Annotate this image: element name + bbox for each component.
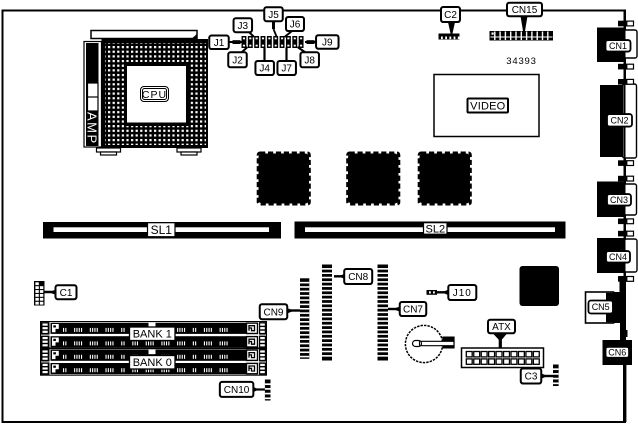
svg-text:BANK 1: BANK 1 (133, 329, 172, 341)
svg-text:J8: J8 (304, 55, 315, 66)
svg-text:J4: J4 (259, 64, 270, 75)
svg-text:J9: J9 (322, 38, 333, 49)
svg-text:C2: C2 (444, 10, 457, 21)
svg-text:J7: J7 (281, 64, 292, 75)
svg-text:AMP: AMP (85, 112, 100, 145)
svg-text:C1: C1 (60, 288, 73, 299)
svg-text:BANK 0: BANK 0 (133, 357, 172, 369)
svg-text:CN10: CN10 (224, 385, 250, 396)
svg-text:CN2: CN2 (610, 116, 628, 126)
svg-text:J10: J10 (453, 288, 472, 299)
svg-text:SL2: SL2 (426, 224, 446, 236)
svg-text:34393: 34393 (506, 56, 536, 67)
svg-text:CN4: CN4 (609, 252, 627, 262)
svg-text:J3: J3 (238, 21, 249, 32)
svg-text:CN6: CN6 (608, 348, 626, 358)
svg-text:CN9: CN9 (263, 307, 283, 318)
svg-text:SL1: SL1 (151, 223, 173, 237)
svg-text:CN1: CN1 (609, 41, 627, 51)
svg-text:C3: C3 (525, 372, 538, 383)
svg-text:CN8: CN8 (348, 272, 368, 283)
svg-text:CN3: CN3 (610, 195, 628, 205)
svg-text:ATX: ATX (492, 322, 511, 333)
svg-text:VIDEO: VIDEO (470, 101, 505, 113)
svg-text:CN5: CN5 (592, 302, 610, 312)
svg-text:CN15: CN15 (512, 5, 538, 16)
svg-text:J2: J2 (232, 55, 243, 66)
svg-text:J1: J1 (214, 38, 225, 49)
svg-text:CPU: CPU (142, 89, 167, 101)
svg-text:J6: J6 (290, 20, 301, 31)
svg-text:J5: J5 (268, 10, 279, 21)
svg-text:CN7: CN7 (403, 305, 423, 316)
